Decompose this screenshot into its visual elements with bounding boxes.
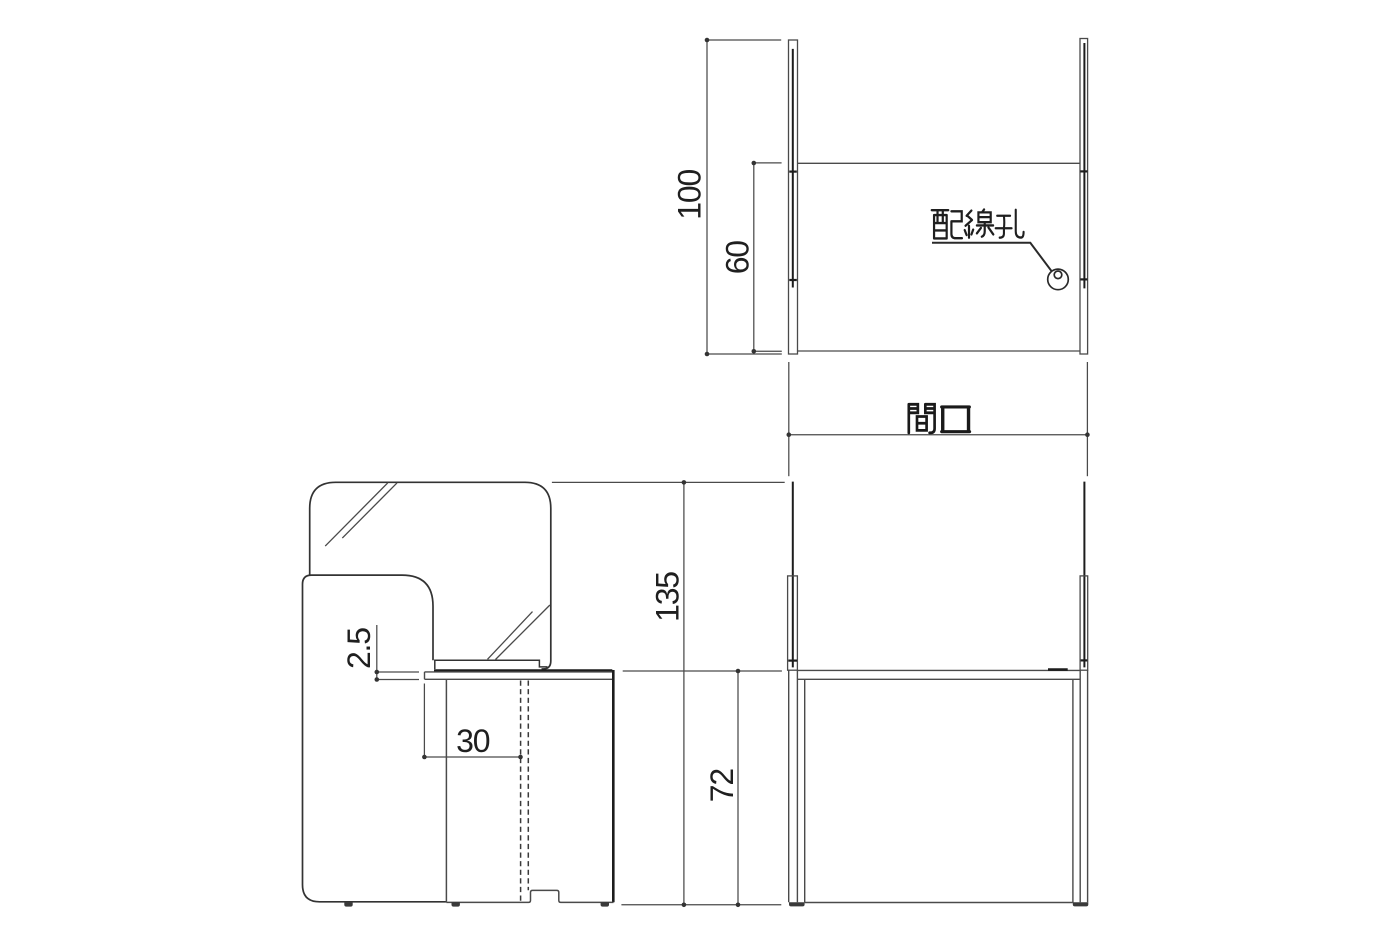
svg-text:72: 72 xyxy=(704,769,740,803)
svg-text:30: 30 xyxy=(456,723,490,759)
svg-text:2.5: 2.5 xyxy=(341,628,377,669)
svg-text:100: 100 xyxy=(672,170,708,220)
svg-text:135: 135 xyxy=(650,572,686,622)
svg-text:60: 60 xyxy=(719,241,755,275)
